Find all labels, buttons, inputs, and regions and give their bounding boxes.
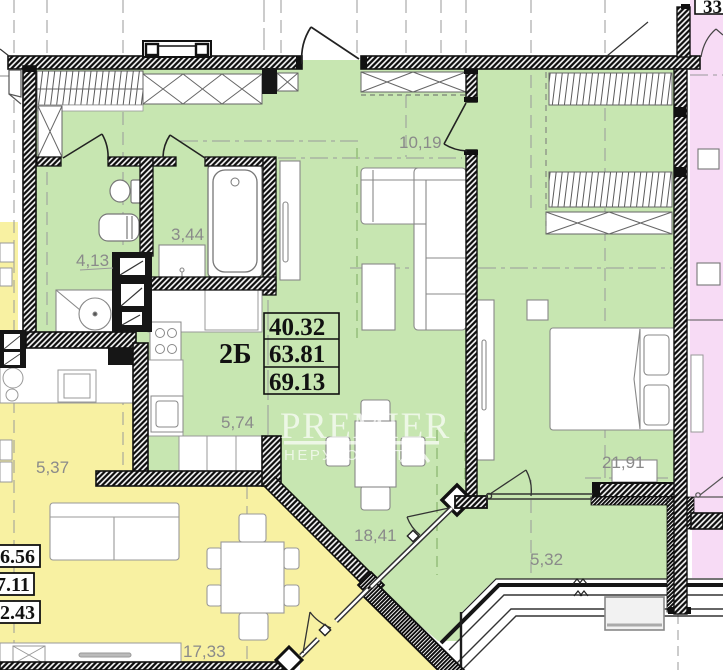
svg-text:3,44: 3,44 [171,225,204,244]
svg-text:2Б: 2Б [219,339,252,370]
svg-text:17,33: 17,33 [183,642,226,661]
svg-text:PREMIER: PREMIER [280,406,451,447]
svg-text:10,19: 10,19 [399,133,442,152]
svg-text:4,13: 4,13 [76,251,109,270]
svg-text:7.11: 7.11 [0,574,30,596]
svg-text:5,37: 5,37 [36,458,69,477]
svg-text:40.32: 40.32 [269,314,325,341]
svg-text:5,32: 5,32 [530,550,563,569]
svg-text:21,91: 21,91 [602,453,645,472]
svg-text:5,74: 5,74 [221,413,254,432]
svg-text:33: 33 [703,0,722,18]
svg-text:18,41: 18,41 [354,526,397,545]
svg-text:69.13: 69.13 [269,369,325,396]
svg-text:6.56: 6.56 [0,546,35,568]
svg-text:2.43: 2.43 [0,602,35,624]
svg-text:63.81: 63.81 [269,341,325,368]
svg-text:НЕРУХОМІСТЬ: НЕРУХОМІСТЬ [284,447,419,464]
